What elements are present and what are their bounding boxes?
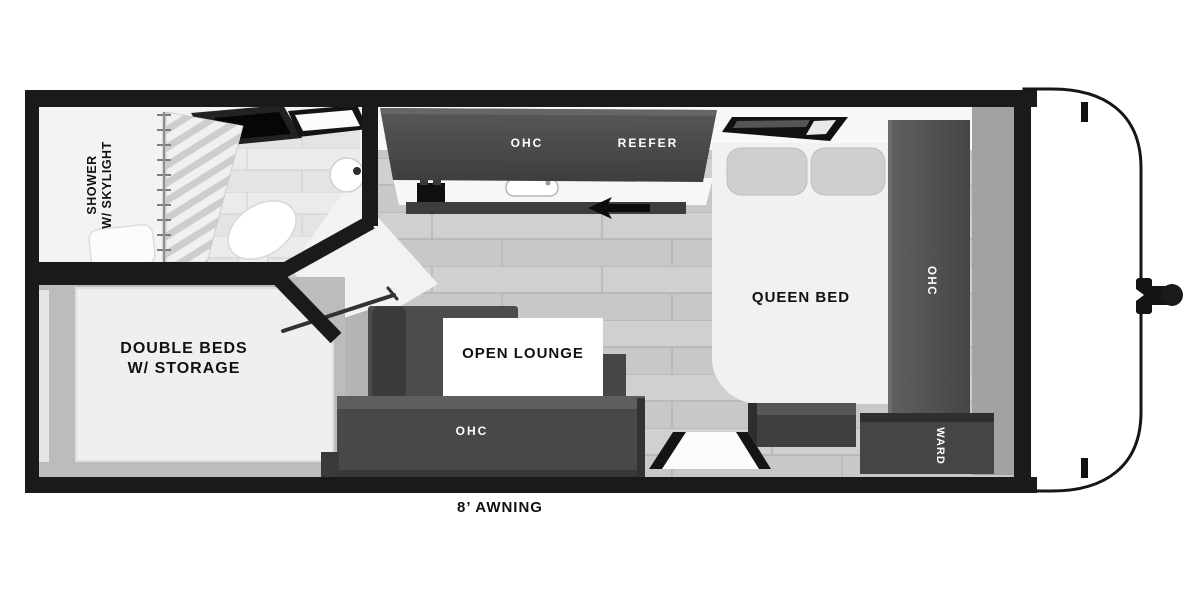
pillow-icon — [811, 148, 885, 195]
cooktop-icon — [417, 183, 445, 202]
queen-bed-label: QUEEN BED — [721, 289, 881, 306]
lounge-overhead-cabinet — [321, 396, 645, 480]
bedroom-ohc-label: OHC — [925, 251, 937, 311]
lounge-ohc-label: OHC — [432, 424, 512, 438]
open-lounge-label: OPEN LOUNGE — [443, 345, 603, 362]
kitchen — [380, 108, 717, 219]
shower-label-line1: SHOWER — [85, 135, 100, 235]
floorplan: SHOWER W/ SKYLIGHT OHC REEFER QUEEN BED … — [0, 0, 1200, 600]
reefer-label: REEFER — [598, 136, 698, 150]
trailer-front-cap — [1024, 89, 1141, 491]
awning-label: 8’ AWNING — [420, 499, 580, 516]
shower-label-line2: W/ SKYLIGHT — [100, 135, 115, 235]
front-cap-marker-bottom — [1081, 458, 1088, 478]
shower-label: SHOWER W/ SKYLIGHT — [85, 135, 115, 235]
double-beds-label-line1: DOUBLE BEDS — [84, 339, 284, 359]
floorplan-canvas — [0, 0, 1200, 600]
kitchen-sink-icon — [506, 179, 558, 196]
double-beds-label: DOUBLE BEDS W/ STORAGE — [84, 339, 284, 379]
front-cap-marker-top — [1081, 102, 1088, 122]
wardrobe-cabinet — [860, 413, 994, 474]
lounge — [321, 306, 645, 480]
hitch-coupler-icon — [1136, 278, 1183, 314]
double-beds-label-line2: W/ STORAGE — [84, 359, 284, 379]
pillow-icon — [727, 148, 807, 195]
bed-foot-bench — [748, 403, 856, 447]
ward-label: WARD — [934, 415, 946, 477]
bath-sink-icon — [330, 158, 364, 192]
kitchen-ohc-label: OHC — [487, 136, 567, 150]
